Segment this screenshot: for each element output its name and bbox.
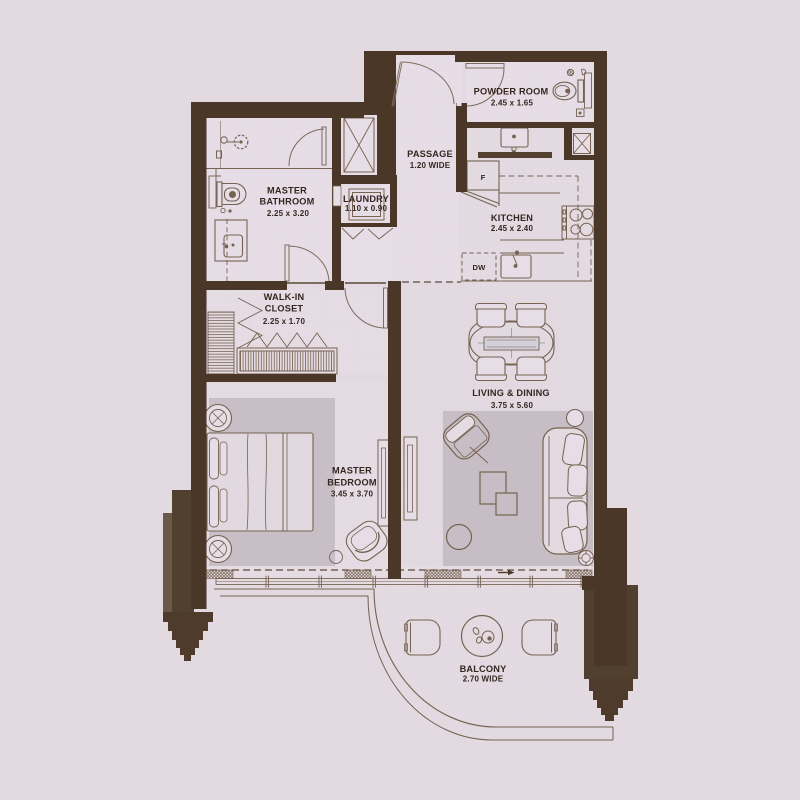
- svg-text:2.25 x 3.20: 2.25 x 3.20: [267, 209, 310, 218]
- svg-text:BEDROOM: BEDROOM: [327, 478, 377, 488]
- svg-text:POWDER ROOM: POWDER ROOM: [474, 87, 549, 97]
- svg-text:3.45 x 3.70: 3.45 x 3.70: [331, 490, 374, 499]
- svg-text:LAUNDRY: LAUNDRY: [343, 194, 389, 204]
- svg-text:DW: DW: [472, 263, 486, 272]
- svg-text:PASSAGE: PASSAGE: [407, 149, 453, 159]
- svg-text:2.25 x 1.70: 2.25 x 1.70: [263, 317, 306, 326]
- svg-text:F: F: [481, 173, 486, 182]
- svg-text:WALK-IN: WALK-IN: [264, 292, 305, 302]
- svg-text:KITCHEN: KITCHEN: [491, 213, 533, 223]
- svg-text:2.45 x 1.65: 2.45 x 1.65: [491, 99, 534, 108]
- svg-text:2.45 x 2.40: 2.45 x 2.40: [491, 224, 534, 233]
- svg-text:MASTER: MASTER: [332, 466, 372, 476]
- svg-text:LIVING & DINING: LIVING & DINING: [472, 388, 550, 398]
- svg-text:CLOSET: CLOSET: [265, 304, 304, 314]
- svg-text:BALCONY: BALCONY: [460, 664, 507, 674]
- svg-text:1.10 x 0.90: 1.10 x 0.90: [345, 204, 388, 213]
- svg-text:BATHROOM: BATHROOM: [259, 197, 314, 207]
- svg-text:2.70 WIDE: 2.70 WIDE: [463, 675, 504, 684]
- svg-text:3.75 x 5.60: 3.75 x 5.60: [491, 401, 534, 410]
- svg-text:1.20 WIDE: 1.20 WIDE: [410, 161, 451, 170]
- svg-text:MASTER: MASTER: [267, 186, 307, 196]
